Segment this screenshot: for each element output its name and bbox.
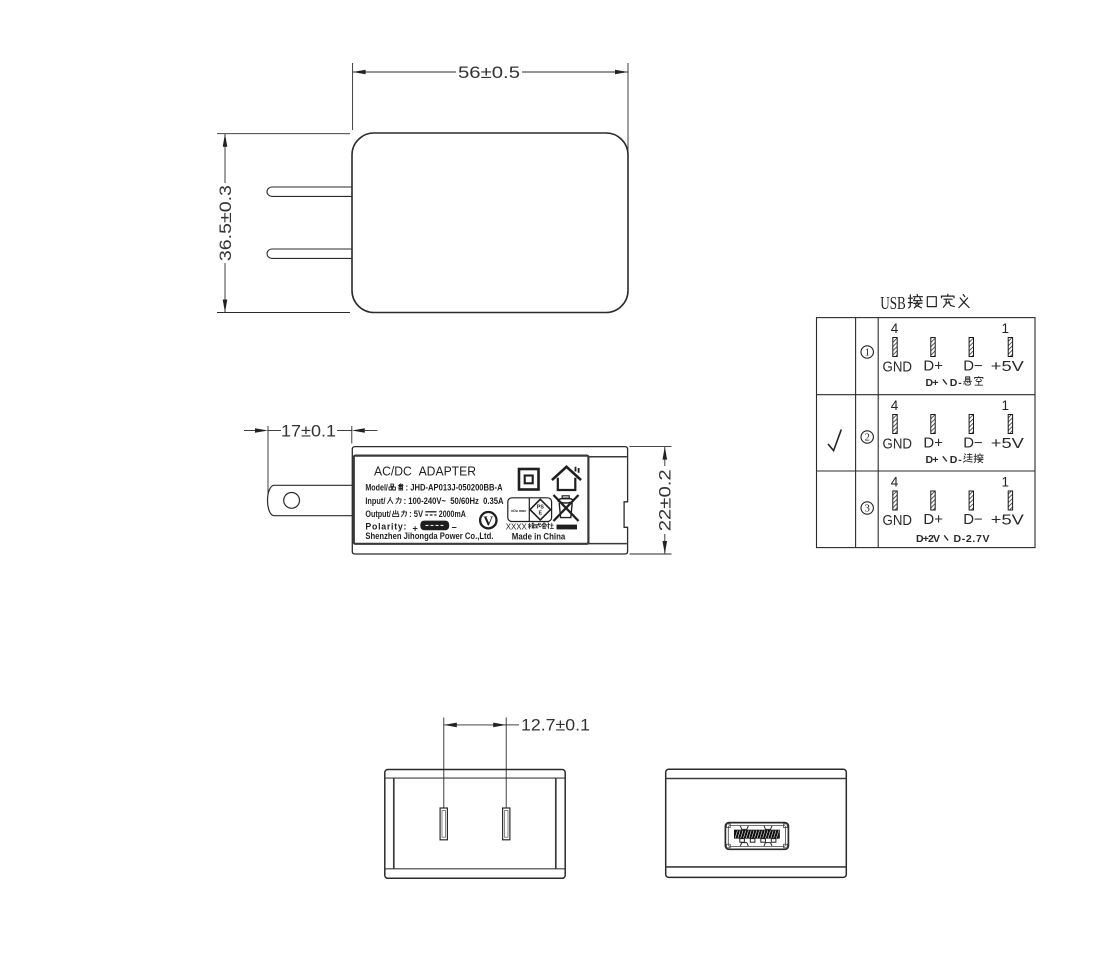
svg-text:: 100-240V~ 50/60Hz 0.35A: : 100-240V~ 50/60Hz 0.35A <box>404 496 505 506</box>
svg-text:1: 1 <box>865 348 870 359</box>
svg-text:D+: D+ <box>923 436 943 452</box>
svg-text:: JHD-AP013J-050200BB-A: : JHD-AP013J-050200BB-A <box>406 482 504 492</box>
svg-text:Input/: Input/ <box>365 496 385 506</box>
svg-text:GND: GND <box>883 513 913 529</box>
svg-text:D-: D- <box>950 377 963 389</box>
svg-text:1: 1 <box>1002 475 1010 490</box>
svg-text:36.5±0.3: 36.5±0.3 <box>216 185 235 261</box>
svg-text:Made in China: Made in China <box>512 531 566 542</box>
svg-text:1: 1 <box>1002 398 1010 413</box>
svg-text:D-: D- <box>950 454 963 466</box>
svg-text:56±0.5: 56±0.5 <box>458 63 520 82</box>
svg-text:2000mA: 2000mA <box>439 509 467 519</box>
svg-text:D+: D+ <box>923 512 943 528</box>
svg-text:D−: D− <box>963 436 983 452</box>
svg-text:D−: D− <box>963 512 983 528</box>
svg-text:22±0.2: 22±0.2 <box>656 469 675 531</box>
svg-text:: 5V: : 5V <box>409 509 423 519</box>
svg-text:AC/DC ADAPTER: AC/DC ADAPTER <box>374 463 476 478</box>
svg-text:XXXX: XXXX <box>506 523 528 532</box>
svg-text:xOu max: xOu max <box>511 509 526 513</box>
svg-text:E: E <box>538 511 542 517</box>
svg-text:Shenzhen Jihongda Power Co.,Lt: Shenzhen Jihongda Power Co.,Ltd. <box>365 531 493 541</box>
svg-text:Model/: Model/ <box>365 482 388 492</box>
svg-text:2: 2 <box>865 433 870 444</box>
svg-text:D+2V: D+2V <box>916 533 940 545</box>
svg-text:D-2.7V: D-2.7V <box>954 533 990 545</box>
svg-text:D+: D+ <box>926 454 939 466</box>
svg-text:+5V: +5V <box>991 513 1024 529</box>
svg-text:V: V <box>483 514 493 529</box>
svg-text:1: 1 <box>1002 321 1010 336</box>
svg-text:4: 4 <box>891 321 899 336</box>
svg-text:4: 4 <box>891 398 899 413</box>
svg-text:17±0.1: 17±0.1 <box>281 421 336 440</box>
svg-text:D+: D+ <box>926 377 939 389</box>
svg-text:GND: GND <box>883 359 913 375</box>
svg-text:GND: GND <box>883 436 913 452</box>
svg-text:Output/: Output/ <box>365 509 391 519</box>
svg-text:12.7±0.1: 12.7±0.1 <box>521 716 590 735</box>
svg-text:3: 3 <box>865 504 870 515</box>
svg-text:+5V: +5V <box>991 436 1024 452</box>
svg-text:USB: USB <box>880 293 906 313</box>
svg-text:D−: D− <box>963 359 983 375</box>
svg-text:D+: D+ <box>923 359 943 375</box>
svg-text:4: 4 <box>891 475 899 490</box>
svg-text:+5V: +5V <box>991 359 1024 375</box>
svg-text:Polarity:: Polarity: <box>365 521 406 531</box>
